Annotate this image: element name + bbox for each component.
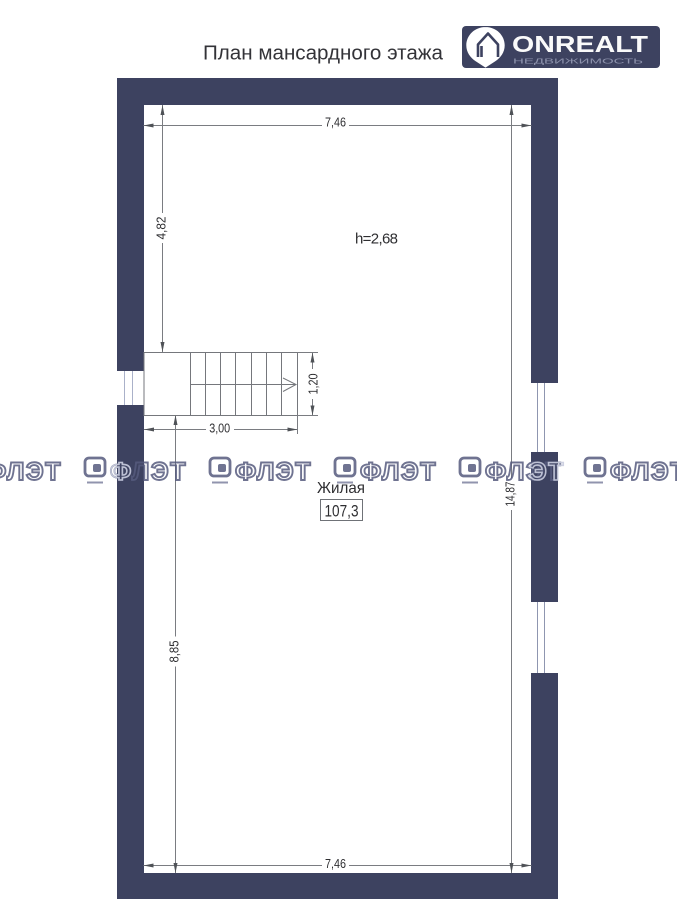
svg-text:План мансардного этажа: План мансардного этажа — [203, 43, 444, 65]
svg-text:h=2,68: h=2,68 — [355, 231, 398, 248]
svg-text:4,82: 4,82 — [153, 217, 168, 240]
svg-text:ЭТ: ЭТ — [529, 458, 565, 486]
svg-text:ФЛЭТ: ФЛЭТ — [235, 458, 312, 486]
svg-text:107,3: 107,3 — [325, 503, 359, 521]
svg-text:1,20: 1,20 — [306, 374, 321, 395]
svg-text:8,85: 8,85 — [166, 641, 181, 663]
svg-text:7,46: 7,46 — [325, 856, 346, 871]
svg-text:3,00: 3,00 — [209, 421, 230, 436]
svg-text:НЕДВИЖИМОСТЬ: НЕДВИЖИМОСТЬ — [513, 59, 644, 66]
svg-text:ONREALT: ONREALT — [512, 31, 648, 57]
svg-text:ФЛЭТ: ФЛЭТ — [610, 458, 677, 486]
svg-text:Ф: Ф — [110, 458, 133, 486]
svg-text:7,46: 7,46 — [325, 115, 346, 130]
svg-text:ФЛЭТ: ФЛЭТ — [360, 458, 437, 486]
svg-text:ФЛЭТ: ФЛЭТ — [0, 458, 62, 486]
